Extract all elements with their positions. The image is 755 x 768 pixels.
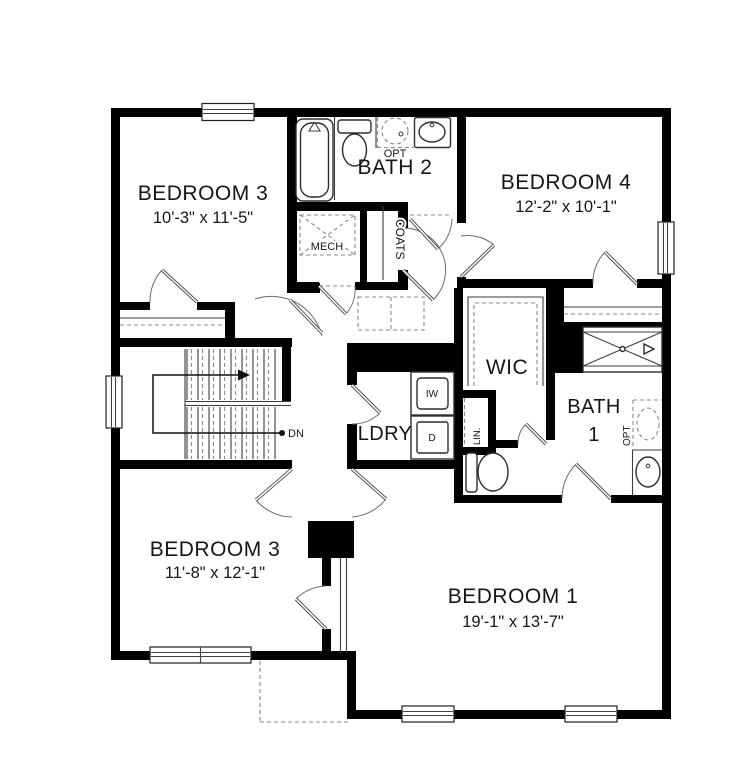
shower (583, 327, 662, 372)
room-label-wic: WIC (486, 356, 528, 379)
closet-label-mech: MECH (311, 241, 343, 253)
opt-label-bath2: OPT (384, 148, 407, 160)
door-bedroom3-side (296, 586, 326, 629)
room-dims-bedroom3-bottom: 11'-8" x 12'-1" (165, 564, 265, 582)
room-label-bedroom4: BEDROOM 4 (501, 171, 632, 194)
floor-plan: BEDROOM 3 10'-3" x 11'-5" BATH 2 OPT BED… (0, 0, 755, 768)
room-label-bedroom1: BEDROOM 1 (448, 585, 579, 608)
door-mech (319, 286, 355, 314)
bathtub (296, 119, 333, 201)
door-hall (255, 296, 322, 336)
door-bedroom3-top (150, 270, 197, 302)
door-coats (403, 228, 446, 300)
stairs-down-label: DN (288, 428, 304, 440)
sink-bath1 (636, 457, 660, 487)
room-label-bedroom3-bottom: BEDROOM 3 (150, 538, 281, 561)
door-wic (518, 424, 546, 444)
door-bedroom4-west (461, 235, 494, 277)
room-dims-bedroom3-top: 10'-3" x 11'-5" (153, 209, 253, 227)
closet-label-coats: COATS (393, 219, 407, 259)
sink-bath2 (415, 118, 451, 148)
room-label-bath1-line2: 1 (588, 424, 600, 446)
room-dims-bedroom1: 19'-1" x 13'-7" (462, 613, 564, 631)
door-laundry (352, 385, 380, 424)
window-right (658, 222, 674, 274)
room-label-bedroom3-top: BEDROOM 3 (138, 182, 269, 205)
stairs-direction-arrow (153, 370, 285, 437)
window-bottom-right-1 (402, 706, 454, 722)
toilet-bath1 (466, 453, 508, 492)
window-left (106, 376, 122, 428)
opt-label-bath1: OPT (622, 425, 633, 446)
door-bedroom3-bottom (256, 469, 292, 517)
closet-label-linen: LIN. (472, 428, 483, 445)
room-label-bath1-line1: BATH (567, 396, 620, 418)
dryer-label: D (428, 433, 435, 444)
optional-sink-bath2 (399, 132, 403, 136)
stairs (153, 349, 285, 459)
room-label-laundry: LDRY (358, 423, 413, 445)
window-bottom-left (150, 647, 251, 663)
door-bedroom1 (352, 469, 386, 517)
floor-plan-svg: BEDROOM 3 10'-3" x 11'-5" BATH 2 OPT BED… (0, 0, 755, 768)
window-bottom-right-2 (565, 706, 617, 722)
room-dims-bedroom4: 12'-2" x 10'-1" (515, 198, 617, 216)
door-bath2 (410, 219, 452, 249)
door-bath1 (562, 464, 611, 499)
labels: BEDROOM 3 10'-3" x 11'-5" BATH 2 OPT BED… (138, 148, 633, 631)
window-top (202, 104, 254, 121)
door-bedroom4-south (593, 252, 637, 284)
washer-label: IW (426, 389, 439, 400)
